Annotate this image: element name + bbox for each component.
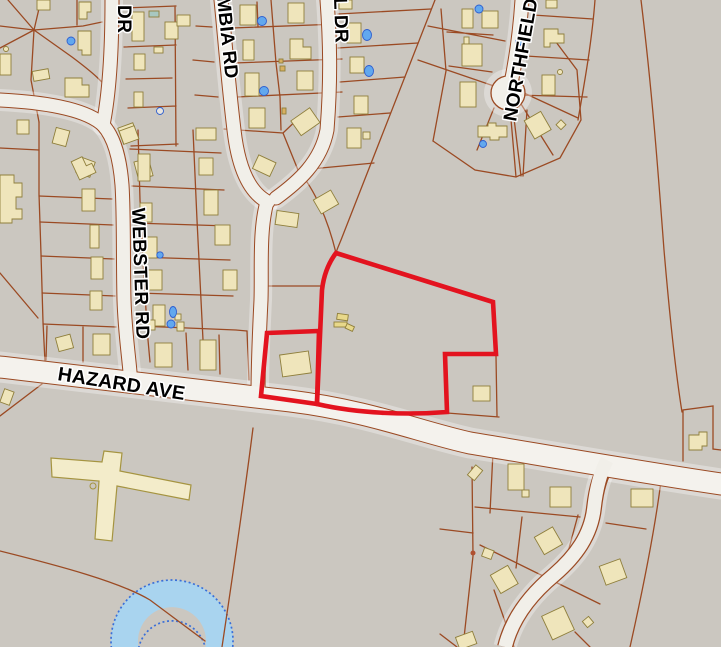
svg-text:L DR: L DR (329, 0, 352, 43)
svg-text:DR: DR (113, 5, 134, 33)
